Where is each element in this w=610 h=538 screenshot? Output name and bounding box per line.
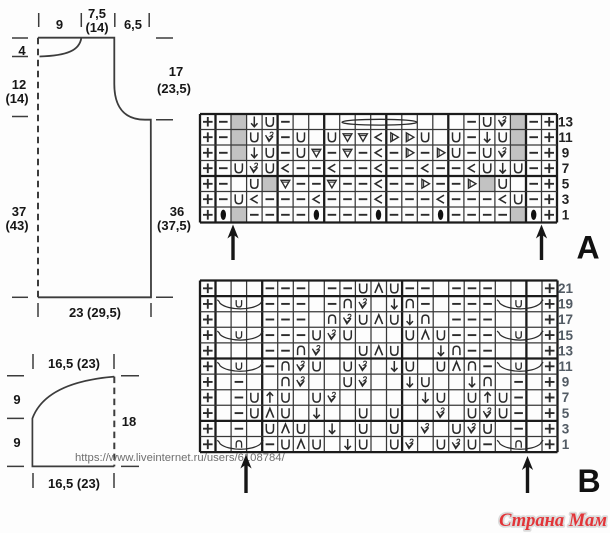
svg-text:7: 7 [562,161,570,176]
svg-text:36: 36 [170,204,184,219]
svg-text:A: A [576,230,599,266]
svg-text:23 (29,5): 23 (29,5) [69,305,121,320]
svg-text:16,5 (23): 16,5 (23) [48,476,100,491]
svg-text:18: 18 [122,414,136,429]
svg-text:12: 12 [12,77,26,92]
svg-text:(23,5): (23,5) [157,81,191,96]
svg-text:(43): (43) [5,218,28,233]
svg-text:9: 9 [13,435,20,450]
svg-text:(14): (14) [85,20,108,35]
svg-text:3: 3 [562,192,570,207]
svg-text:16,5 (23): 16,5 (23) [48,356,100,371]
svg-text:17: 17 [169,64,183,79]
svg-text:1: 1 [562,207,570,222]
svg-text:15: 15 [558,328,574,343]
svg-text:Страна Мам: Страна Мам [499,511,607,531]
svg-text:6,5: 6,5 [124,17,142,32]
svg-text:11: 11 [558,359,573,374]
svg-text:17: 17 [558,312,573,327]
svg-text:(37,5): (37,5) [157,218,191,233]
svg-text:5: 5 [562,406,570,421]
svg-text:B: B [577,463,600,499]
svg-text:9: 9 [56,17,63,32]
svg-text:37: 37 [12,204,26,219]
svg-text:9: 9 [562,375,570,390]
svg-text:(14): (14) [5,91,28,106]
svg-text:9: 9 [13,392,20,407]
svg-text:1: 1 [562,437,570,452]
svg-text:7,5: 7,5 [88,6,106,21]
svg-text:https://www.liveinternet.ru/us: https://www.liveinternet.ru/users/610878… [75,452,286,464]
svg-text:4: 4 [18,43,26,58]
svg-text:5: 5 [562,176,570,191]
svg-text:21: 21 [558,281,574,296]
svg-text:7: 7 [562,390,570,405]
svg-text:13: 13 [558,343,574,358]
svg-text:19: 19 [558,297,573,312]
svg-text:3: 3 [562,421,570,436]
svg-text:13: 13 [558,115,574,130]
svg-text:11: 11 [558,130,573,145]
svg-text:9: 9 [562,145,570,160]
